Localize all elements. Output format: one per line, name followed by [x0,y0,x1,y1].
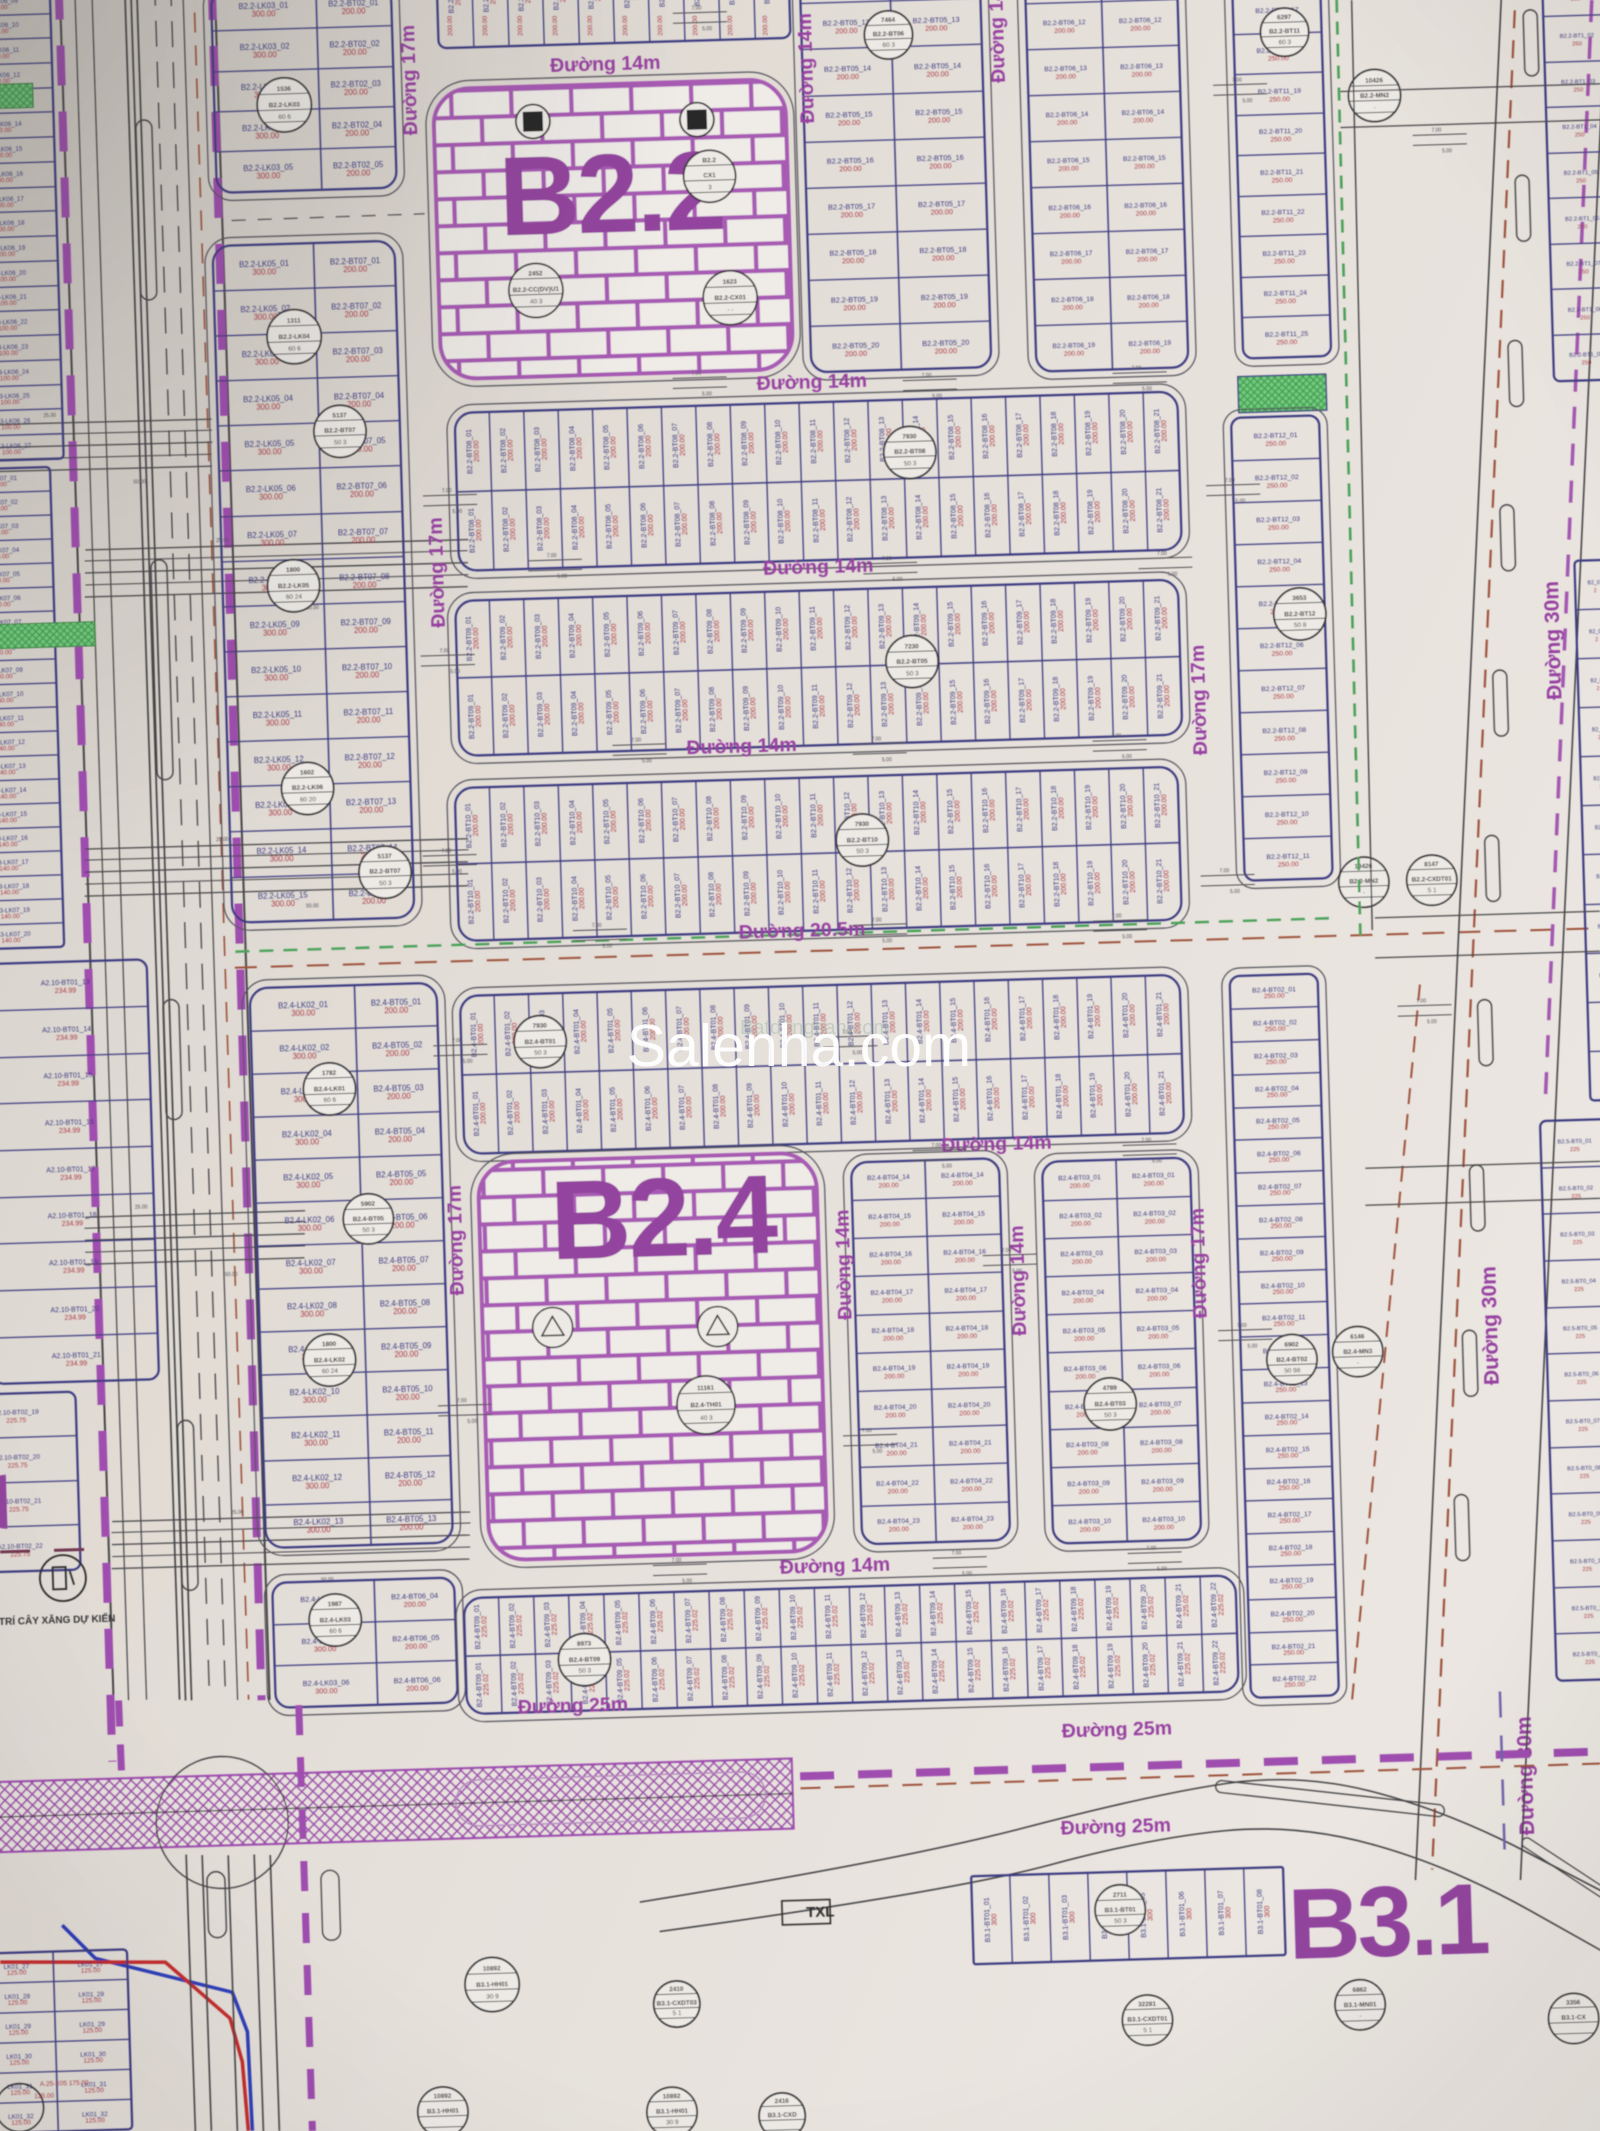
svg-text:Salenha.com: Salenha.com [627,1013,971,1079]
